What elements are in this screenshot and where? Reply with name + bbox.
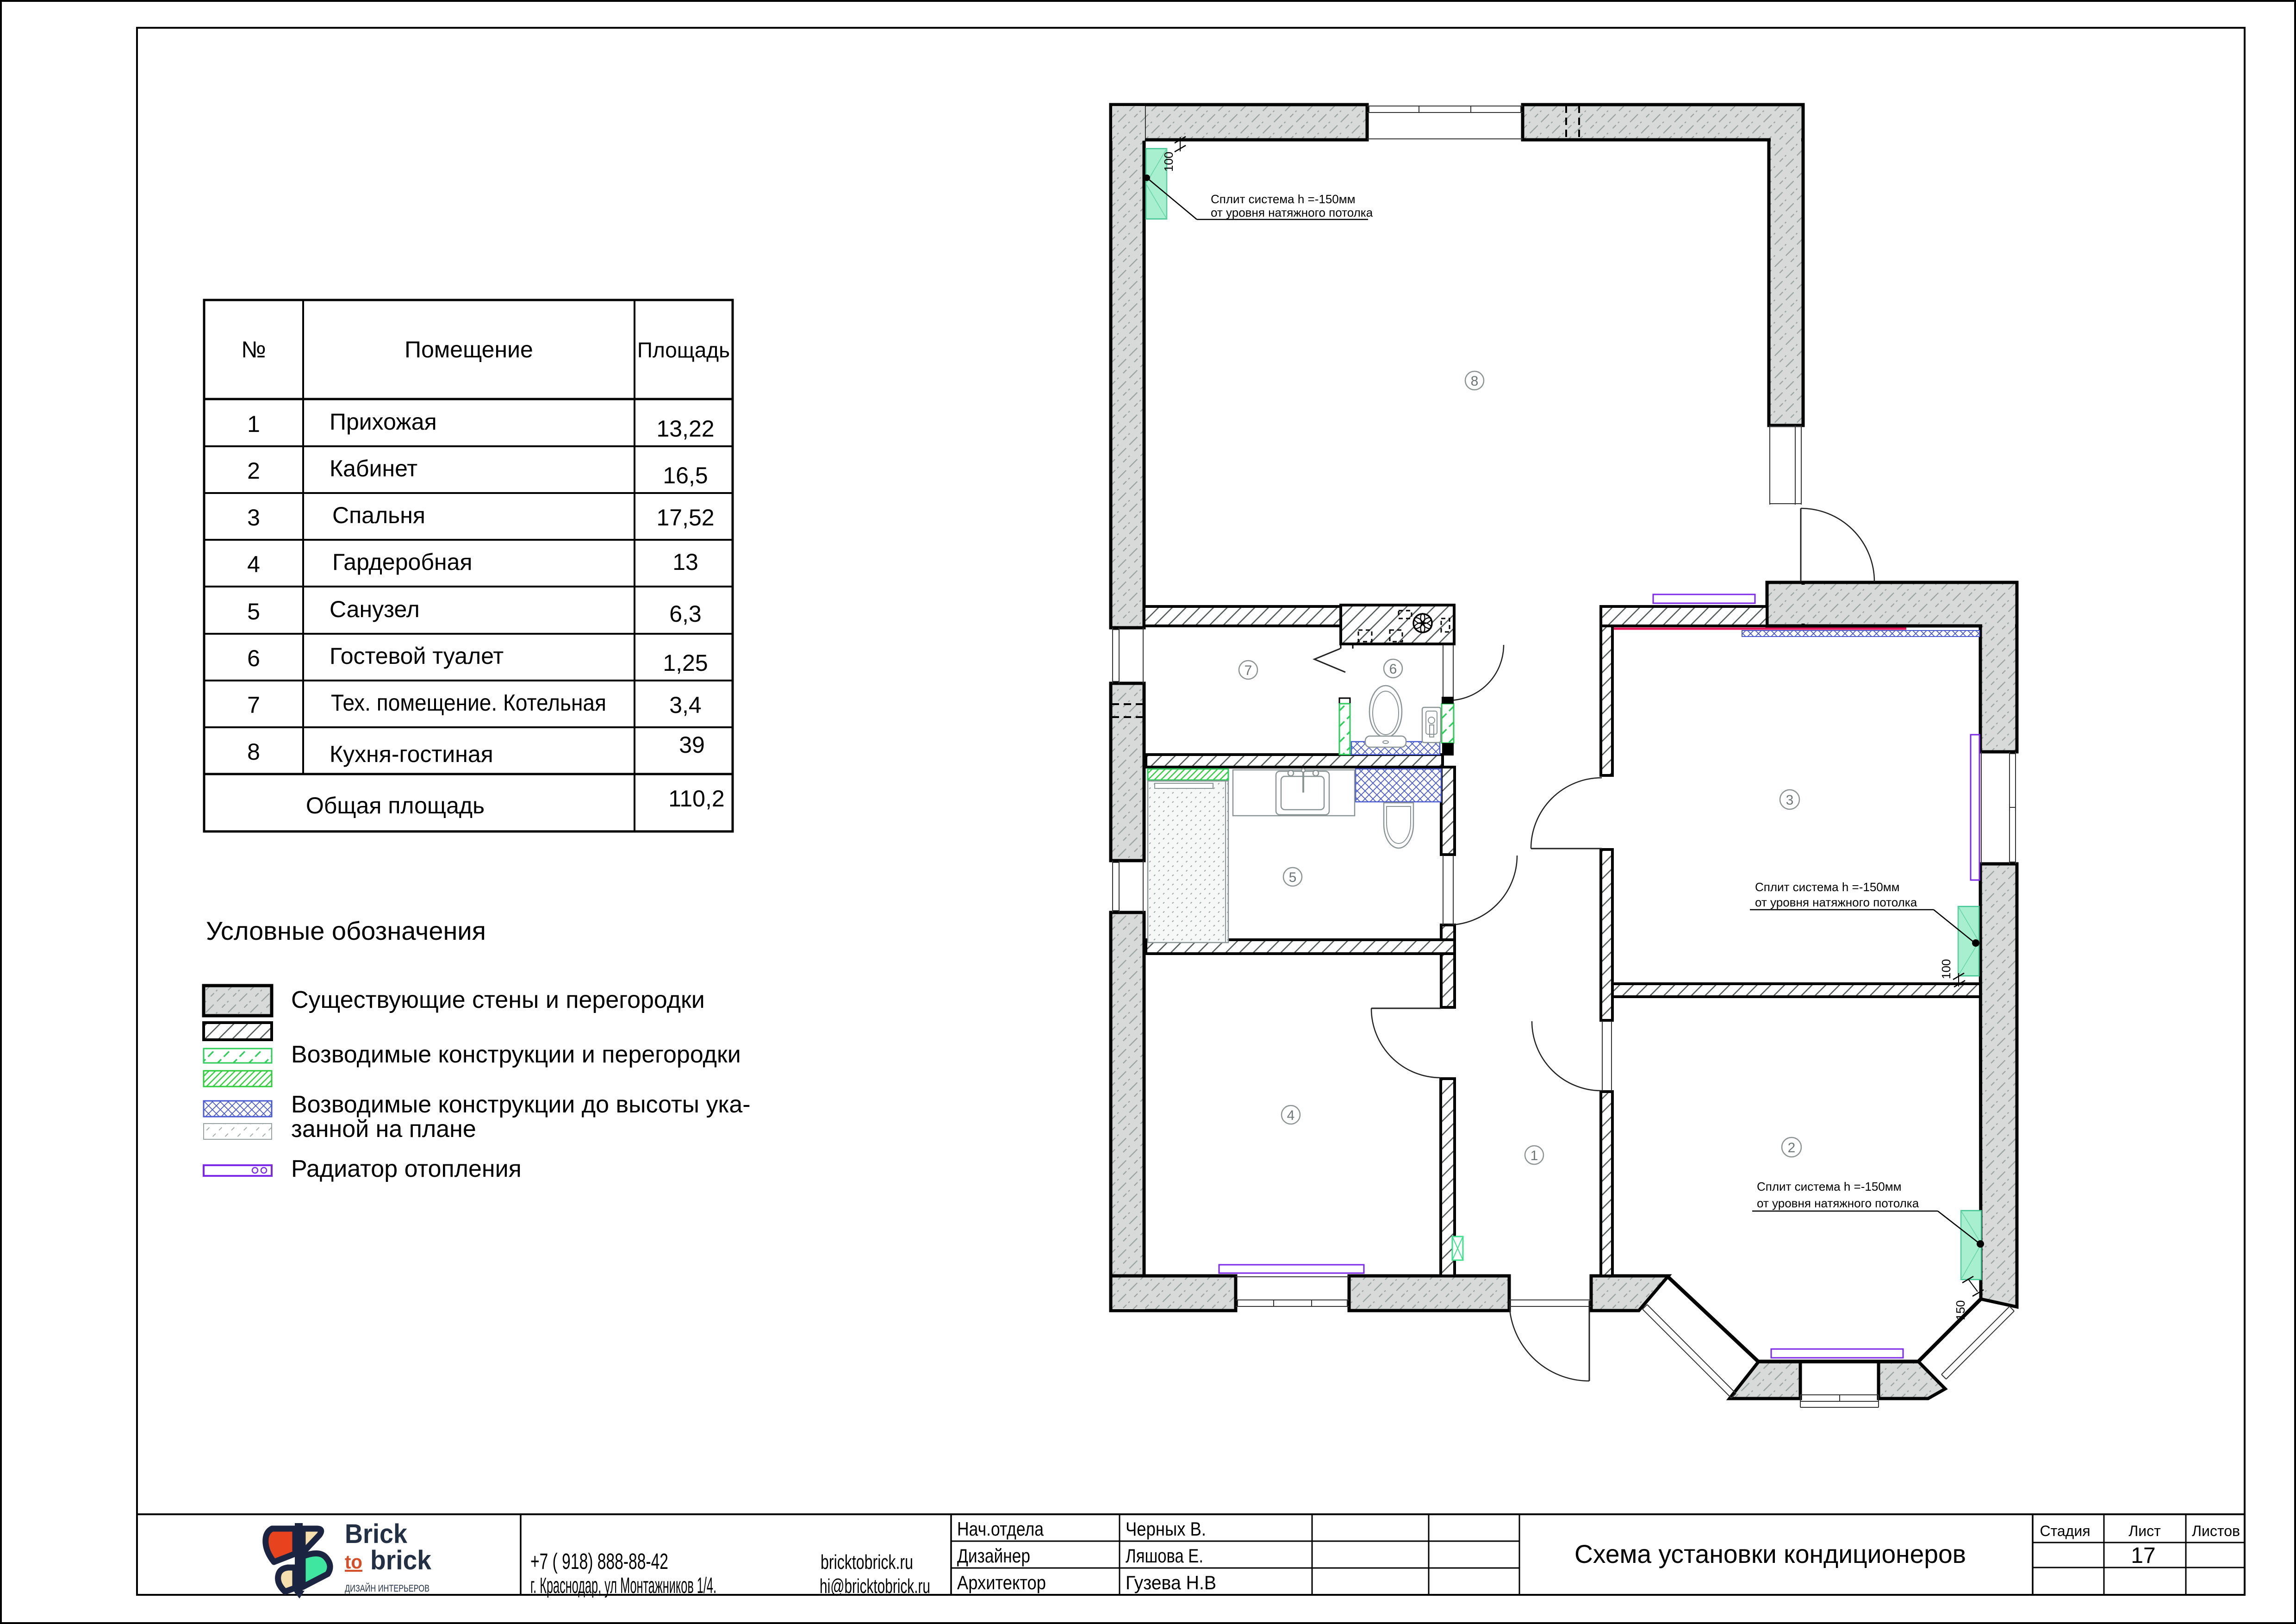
svg-text:Дизайнер: Дизайнер bbox=[957, 1545, 1030, 1567]
svg-text:5: 5 bbox=[247, 599, 260, 625]
svg-text:2: 2 bbox=[1788, 1140, 1796, 1156]
svg-text:Возводимые конструкции до высо: Возводимые конструкции до высоты ука- bbox=[291, 1091, 751, 1118]
svg-text:4: 4 bbox=[247, 551, 260, 577]
svg-text:Стадия: Стадия bbox=[2040, 1523, 2090, 1539]
svg-text:+7 ( 918) 888-88-42: +7 ( 918) 888-88-42 bbox=[530, 1549, 668, 1574]
svg-text:7: 7 bbox=[1244, 663, 1252, 678]
svg-text:Сплит система h =-150мм: Сплит система h =-150мм bbox=[1211, 192, 1356, 206]
svg-text:13: 13 bbox=[672, 549, 698, 575]
svg-text:6,3: 6,3 bbox=[669, 601, 702, 627]
svg-text:Условные обозначения: Условные обозначения bbox=[206, 916, 486, 945]
svg-text:hi@bricktobrick.ru: hi@bricktobrick.ru bbox=[820, 1575, 930, 1598]
svg-text:Ляшова Е.: Ляшова Е. bbox=[1126, 1545, 1203, 1567]
svg-text:to: to bbox=[345, 1551, 362, 1573]
svg-text:1,25: 1,25 bbox=[663, 650, 708, 676]
svg-text:Листов: Листов bbox=[2192, 1523, 2240, 1539]
svg-text:Радиатор отопления: Радиатор отопления bbox=[291, 1156, 522, 1182]
svg-text:6: 6 bbox=[1389, 662, 1397, 677]
svg-text:Гостевой туалет: Гостевой туалет bbox=[330, 643, 504, 669]
svg-text:110,2: 110,2 bbox=[668, 786, 724, 812]
svg-text:17,52: 17,52 bbox=[656, 505, 714, 531]
svg-text:8: 8 bbox=[1471, 374, 1479, 389]
svg-text:7: 7 bbox=[247, 692, 260, 718]
svg-text:13,22: 13,22 bbox=[656, 416, 714, 442]
svg-text:8: 8 bbox=[247, 739, 260, 765]
svg-text:Существующие стены и перегород: Существующие стены и перегородки bbox=[291, 987, 705, 1013]
svg-text:Общая площадь: Общая площадь bbox=[306, 793, 485, 818]
svg-text:100: 100 bbox=[1939, 959, 1953, 979]
svg-text:Brick: Brick bbox=[345, 1519, 408, 1549]
svg-text:Гузева Н.В: Гузева Н.В bbox=[1126, 1572, 1216, 1593]
svg-text:1: 1 bbox=[247, 411, 260, 437]
svg-text:3: 3 bbox=[247, 505, 260, 531]
svg-text:Спальня: Спальня bbox=[332, 502, 425, 528]
svg-text:Архитектор: Архитектор bbox=[957, 1572, 1046, 1593]
svg-text:Прихожая: Прихожая bbox=[330, 409, 437, 435]
svg-text:Кабинет: Кабинет bbox=[330, 456, 417, 481]
svg-text:100: 100 bbox=[1162, 152, 1176, 172]
svg-text:ДИЗАЙН ИНТЕРЬЕРОВ: ДИЗАЙН ИНТЕРЬЕРОВ bbox=[345, 1583, 429, 1594]
svg-text:Нач.отдела: Нач.отдела bbox=[957, 1518, 1044, 1540]
svg-text:Сплит система h =-150мм: Сплит система h =-150мм bbox=[1755, 880, 1900, 894]
svg-text:Черных В.: Черных В. bbox=[1126, 1518, 1206, 1540]
svg-text:№: № bbox=[241, 337, 266, 362]
svg-text:Лист: Лист bbox=[2128, 1523, 2161, 1539]
svg-text:Сплит система h =-150мм: Сплит система h =-150мм bbox=[1757, 1180, 1902, 1193]
svg-text:17: 17 bbox=[2131, 1543, 2155, 1568]
svg-text:занной на плане: занной на плане bbox=[291, 1116, 476, 1143]
svg-text:3: 3 bbox=[1786, 793, 1794, 808]
svg-text:150: 150 bbox=[1954, 1300, 1967, 1320]
svg-text:от уровня натяжного потолка: от уровня натяжного потолка bbox=[1755, 895, 1917, 909]
svg-text:16,5: 16,5 bbox=[663, 462, 708, 488]
svg-text:Помещение: Помещение bbox=[404, 337, 533, 362]
svg-text:г. Краснодар, ул Монтажников: г. Краснодар, ул Монтажников 1/4. bbox=[530, 1574, 716, 1598]
svg-text:4: 4 bbox=[1287, 1108, 1295, 1123]
svg-text:1: 1 bbox=[1531, 1148, 1538, 1163]
svg-text:от уровня натяжного потолка: от уровня натяжного потолка bbox=[1757, 1196, 1919, 1210]
svg-text:bricktobrick.ru: bricktobrick.ru bbox=[821, 1551, 913, 1574]
svg-text:Тех. помещение. Котельная: Тех. помещение. Котельная bbox=[331, 690, 606, 716]
svg-text:от уровня натяжного потолка: от уровня натяжного потолка bbox=[1211, 206, 1373, 219]
svg-text:Санузел: Санузел bbox=[330, 596, 420, 622]
svg-text:Схема установки кондиционеров: Схема установки кондиционеров bbox=[1574, 1539, 1966, 1568]
svg-text:Возводимые конструкции и перег: Возводимые конструкции и перегородки bbox=[291, 1041, 741, 1068]
svg-text:brick: brick bbox=[370, 1545, 432, 1575]
svg-text:5: 5 bbox=[1289, 870, 1297, 885]
svg-text:3,4: 3,4 bbox=[669, 692, 702, 718]
svg-text:2: 2 bbox=[247, 458, 260, 484]
svg-text:Кухня-гостиная: Кухня-гостиная bbox=[330, 741, 493, 767]
svg-text:Площадь: Площадь bbox=[637, 338, 730, 362]
svg-text:39: 39 bbox=[679, 732, 705, 758]
svg-text:6: 6 bbox=[247, 645, 260, 671]
svg-text:Гардеробная: Гардеробная bbox=[332, 549, 472, 575]
